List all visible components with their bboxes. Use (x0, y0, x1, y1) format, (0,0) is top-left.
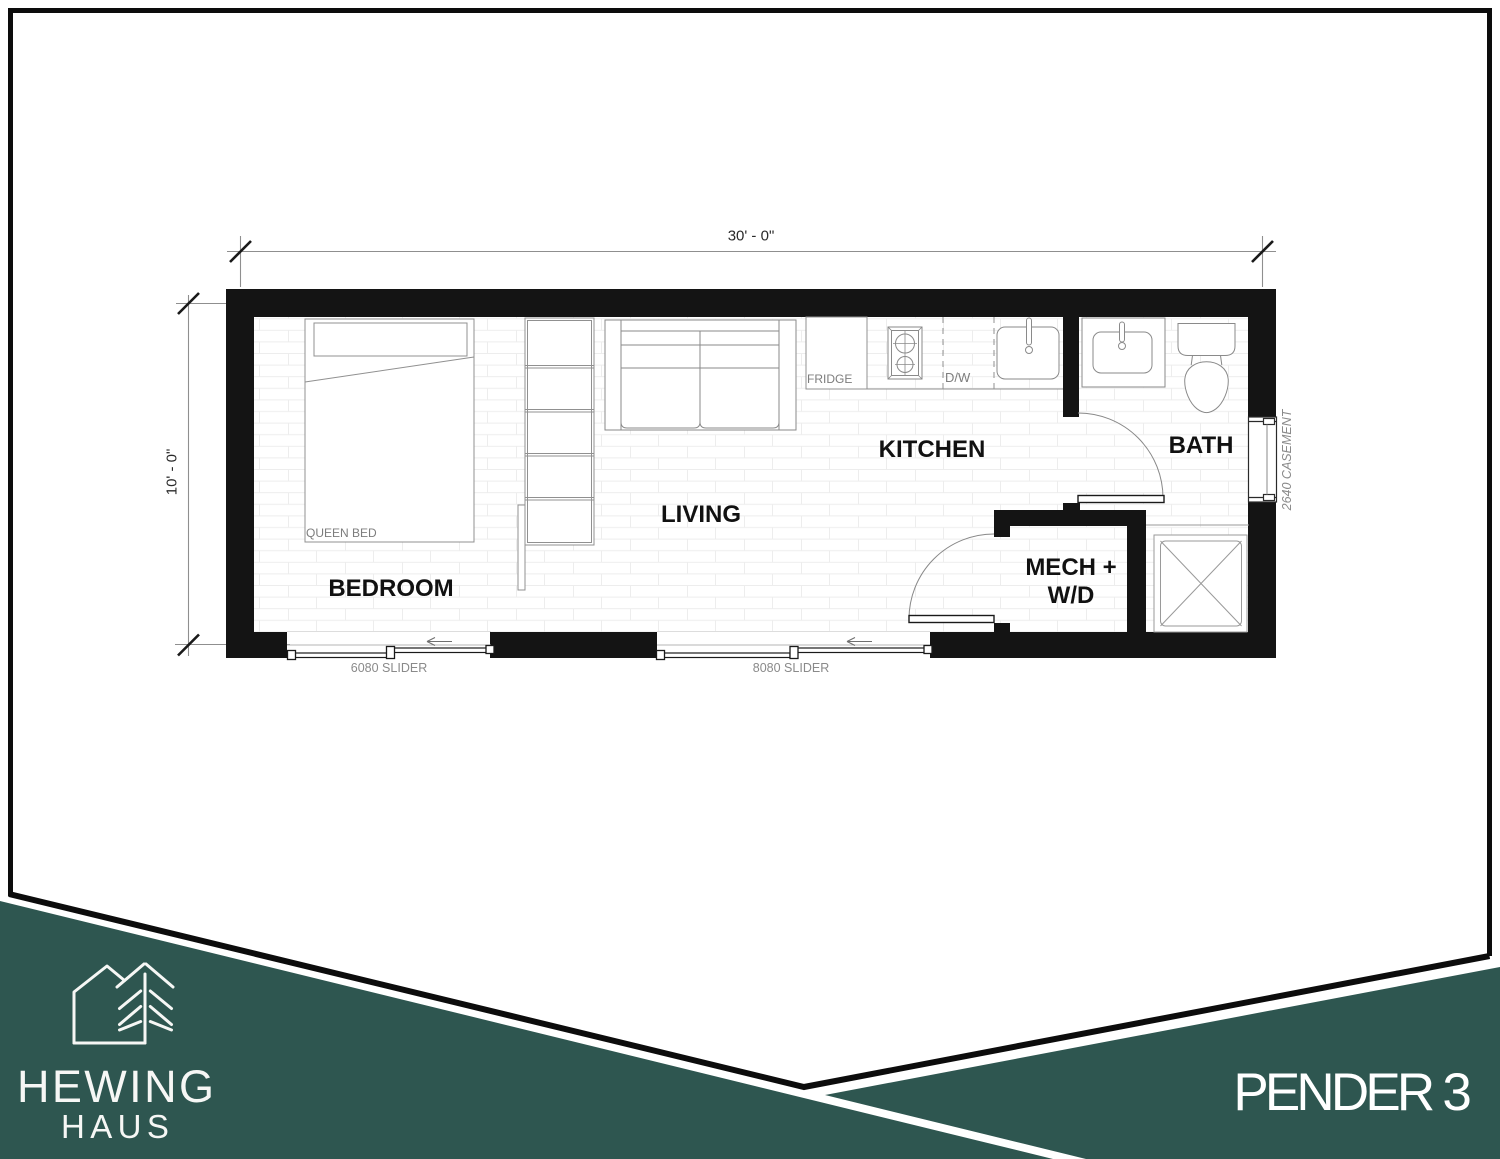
svg-text:QUEEN BED: QUEEN BED (306, 526, 377, 540)
svg-text:MECH +: MECH + (1025, 554, 1116, 581)
svg-text:D/W: D/W (945, 370, 971, 385)
svg-text:W/D: W/D (1048, 582, 1095, 609)
svg-text:LIVING: LIVING (661, 501, 741, 528)
svg-text:HAUS: HAUS (61, 1108, 174, 1145)
svg-text:FRIDGE: FRIDGE (807, 372, 852, 386)
svg-text:PENDER 3: PENDER 3 (1233, 1063, 1470, 1122)
svg-text:BEDROOM: BEDROOM (328, 575, 453, 602)
svg-text:2640 CASEMENT: 2640 CASEMENT (1280, 408, 1294, 511)
svg-text:KITCHEN: KITCHEN (879, 436, 986, 463)
svg-text:6080 SLIDER: 6080 SLIDER (351, 661, 427, 675)
svg-text:HEWING: HEWING (17, 1061, 216, 1112)
svg-text:BATH: BATH (1169, 432, 1234, 459)
svg-text:30' - 0": 30' - 0" (728, 228, 775, 245)
svg-text:10' - 0": 10' - 0" (164, 449, 181, 496)
svg-text:8080 SLIDER: 8080 SLIDER (753, 661, 829, 675)
